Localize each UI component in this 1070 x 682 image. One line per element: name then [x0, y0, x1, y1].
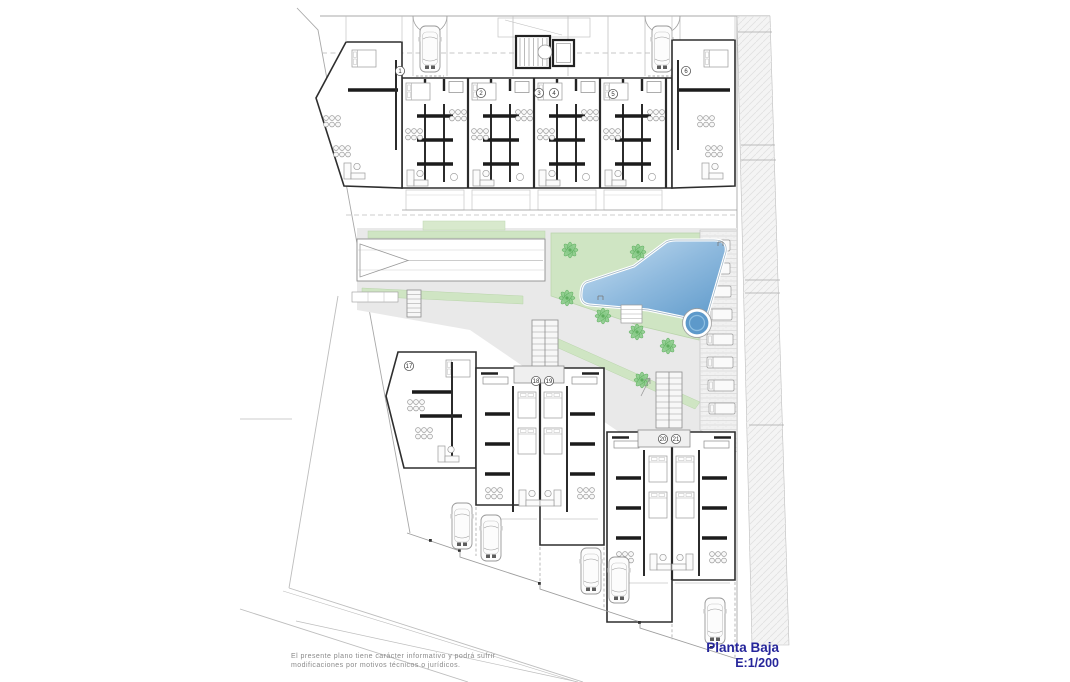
jacuzzi — [683, 309, 712, 338]
elevator — [553, 40, 574, 66]
unit-number: 19 — [546, 379, 553, 385]
plan-title: Planta Baja — [706, 640, 779, 655]
unit-number: 18 — [533, 379, 540, 385]
disclaimer-line-1: El presente plano tiene carácter informa… — [291, 653, 496, 660]
palm-tree-icon — [630, 244, 646, 260]
car — [579, 548, 602, 594]
stair-core — [498, 18, 590, 68]
car — [418, 26, 441, 72]
unit-number: 20 — [660, 437, 667, 443]
sun-lounger — [707, 334, 733, 345]
exterior-stair-left — [407, 290, 421, 317]
disclaimer-line-2: modificaciones por motivos técnicos o ju… — [291, 662, 460, 669]
palm-tree-icon — [562, 242, 578, 258]
title-block: Planta Baja E:1/200 — [706, 640, 779, 670]
car — [479, 515, 502, 561]
ramp-green-edge — [368, 231, 545, 238]
palm-tree-icon — [559, 290, 575, 306]
unit-number: 21 — [673, 437, 680, 443]
unit-number: 17 — [406, 364, 413, 370]
terrace-green-strip — [423, 221, 505, 230]
floor-plan-page: 1 2 3 4 5 6 17 18 19 20 21 El presente p… — [0, 0, 1070, 682]
neighbor-parcel-strip — [737, 16, 789, 645]
palm-tree-icon — [660, 338, 676, 354]
palm-tree-icon — [629, 324, 645, 340]
site-plan-canvas: 1 2 3 4 5 6 17 18 19 20 21 El presente p… — [0, 0, 1070, 682]
pool-steps — [621, 305, 642, 323]
plan-scale: E:1/200 — [735, 656, 779, 670]
car — [650, 26, 673, 72]
car — [450, 503, 473, 549]
car — [703, 598, 726, 644]
sun-lounger — [707, 357, 733, 368]
sun-lounger — [708, 380, 734, 391]
sun-lounger — [709, 403, 735, 414]
car — [607, 557, 630, 603]
palm-tree-icon — [634, 372, 650, 388]
palm-tree-icon — [595, 308, 611, 324]
disclaimer-text: El presente plano tiene carácter informa… — [291, 653, 496, 669]
